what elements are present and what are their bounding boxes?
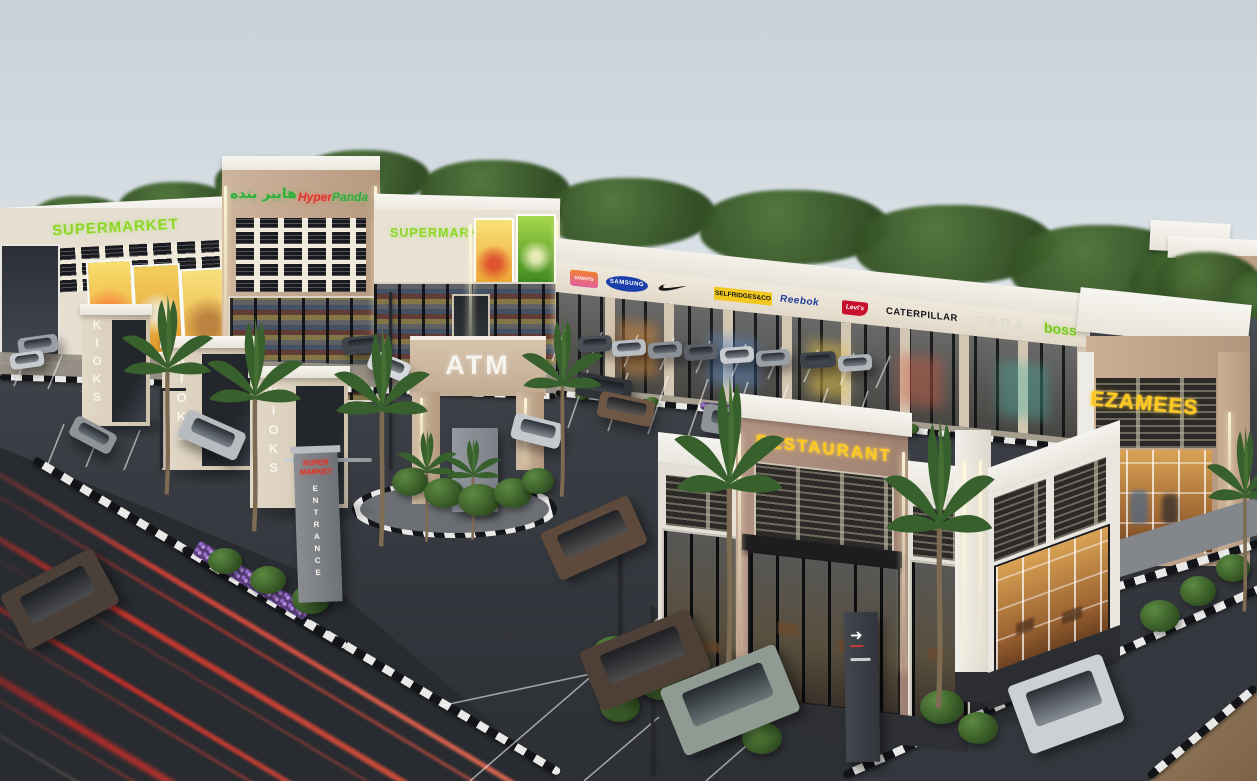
interior-table [1016,617,1034,636]
brand-sign-levis: Levi's [842,300,868,317]
hyperpanda-sign: HyperPanda [298,190,368,204]
entrance-sign-vertical: ENTRANCE [311,484,324,596]
bush [958,712,998,744]
billboard [516,214,556,284]
palm-tree [1205,424,1257,614]
billboard [474,218,514,284]
brand-label: DONUTS [575,275,594,282]
hyperpanda-sign-hyper: Hyper [298,190,332,204]
car [837,354,872,372]
car [799,351,836,369]
shop-interior [998,360,1048,420]
palm-tree [882,412,997,712]
bush [250,566,286,594]
interior-table [1062,606,1082,625]
shop-interior [898,354,943,409]
hyperpanda-sign-arabic: هايبر بنده [230,186,297,202]
brand-sign-donuts: DONUTS [570,269,598,288]
interior-figure [1162,494,1178,524]
scene: SUPERMARKET هايبر بنده HyperPanda SUPERM… [0,0,1257,781]
palm-tree [520,314,605,499]
brand-label: Levi's [846,303,864,312]
pylon-text-smudge [850,658,870,661]
car [647,341,682,359]
bush [1140,600,1180,632]
car [683,343,718,361]
car [719,346,754,364]
interior-figure [1130,490,1148,524]
bush [208,548,242,574]
palm-tree [120,292,215,497]
brand-sign-boss: boss [1044,319,1077,338]
brand-label: SELFRIDGES&CO [715,290,771,303]
palm-tree [332,324,432,549]
direction-pylon: ➜ [844,612,881,763]
arrow-right-icon: ➜ [850,626,863,647]
car [755,349,790,367]
hyperpanda-sign-panda: Panda [332,190,368,204]
car [611,339,646,357]
brand-label: SAMSUNG [610,279,644,289]
checker-panel [236,218,366,292]
palm-tree [205,314,305,534]
kiosk-sign: KIOKS [90,318,104,422]
